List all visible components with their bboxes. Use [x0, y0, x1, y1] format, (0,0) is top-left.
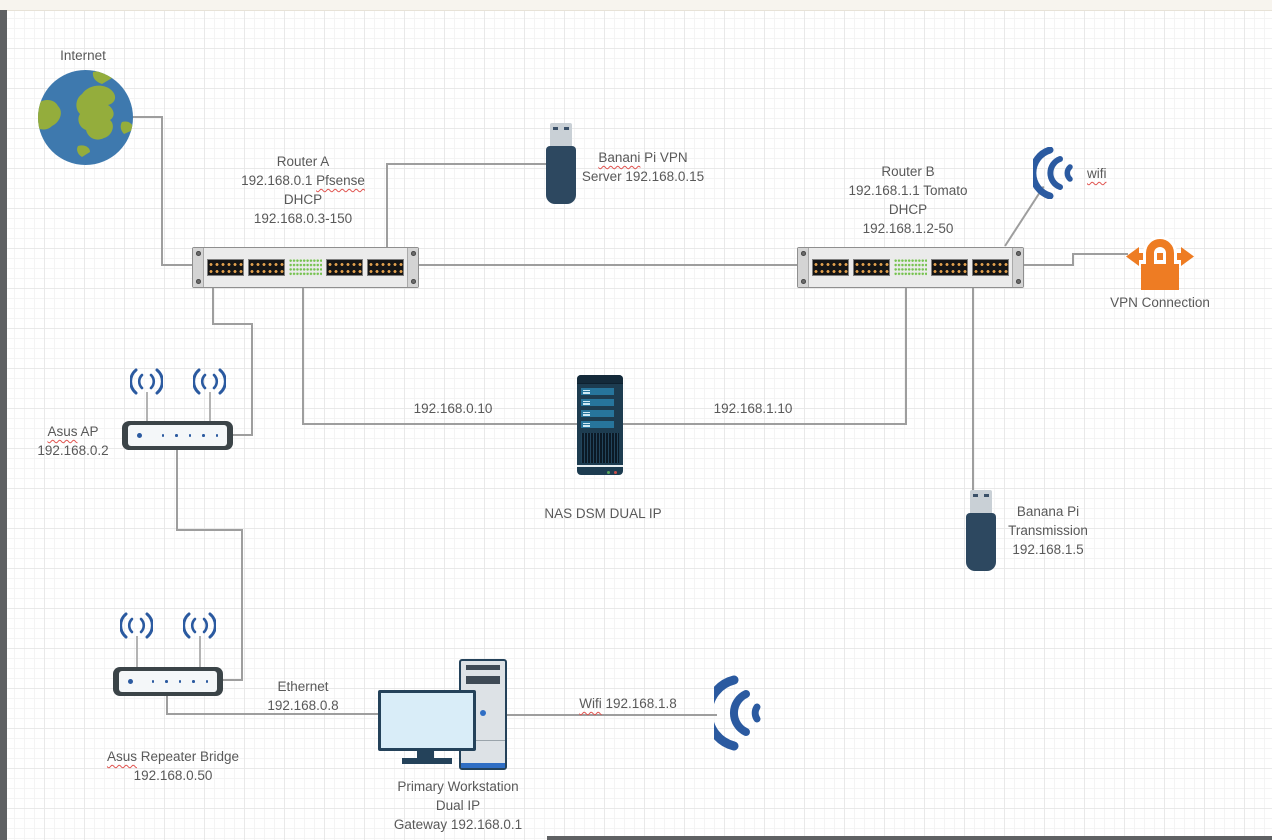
- label-line: NAS DSM DUAL IP: [513, 504, 693, 523]
- label-line: Transmission: [978, 521, 1118, 540]
- asus-repeater-bridge-label: Asus Repeater Bridge192.168.0.50: [73, 747, 273, 785]
- label-line: 192.168.1.10: [693, 399, 813, 418]
- label-line: VPN Connection: [1080, 293, 1240, 312]
- label-line: Ethernet: [233, 677, 373, 696]
- antenna-wifi-icon: [183, 612, 216, 639]
- port-group: [207, 259, 244, 276]
- router-a-switch[interactable]: [192, 247, 419, 288]
- antenna: [209, 392, 211, 422]
- connector-routerb-vpn[interactable]: [1072, 253, 1128, 255]
- led-grid: [894, 259, 927, 277]
- label-line: 192.168.0.1 Pfsense: [193, 171, 413, 190]
- connector-routera-asusap[interactable]: [251, 323, 253, 436]
- label-line: 192.168.1.5: [978, 540, 1118, 559]
- router-a-label: Router A192.168.0.1 PfsenseDHCP192.168.0…: [193, 152, 413, 228]
- label-line: Asus AP: [0, 422, 148, 441]
- port-group: [853, 259, 890, 276]
- port-group: [931, 259, 968, 276]
- connector-routera-asusap[interactable]: [232, 434, 253, 436]
- connector-routera-nas[interactable]: [302, 423, 578, 425]
- ip-192-168-1-10-label: 192.168.1.10: [693, 399, 813, 418]
- label-line: 192.168.0.8: [233, 696, 373, 715]
- port-group: [326, 259, 363, 276]
- ip-192-168-0-10-label: 192.168.0.10: [393, 399, 513, 418]
- label-line: Gateway 192.168.0.1: [348, 815, 568, 834]
- rack-ear: [798, 248, 809, 287]
- rack-ear: [407, 248, 418, 287]
- monitor-stand: [417, 751, 434, 758]
- vpn-connection-label: VPN Connection: [1080, 293, 1240, 312]
- antenna: [146, 392, 148, 422]
- label-line: Router A: [193, 152, 413, 171]
- label-line: 192.168.0.2: [0, 441, 148, 460]
- monitor-stand: [402, 758, 452, 764]
- wifi-label: wifi: [1087, 164, 1147, 183]
- bottom-scrollbar[interactable]: [547, 836, 1272, 840]
- ethernet-label: Ethernet192.168.0.8: [233, 677, 373, 715]
- top-toolbar-edge: [0, 0, 1272, 11]
- globe-icon[interactable]: [38, 70, 133, 165]
- connector-routera-asusap[interactable]: [212, 286, 214, 325]
- label-line: Banani Pi VPN: [543, 148, 743, 167]
- label-line: Wifi 192.168.1.8: [548, 694, 708, 713]
- port-group: [248, 259, 285, 276]
- label-line: Dual IP: [348, 796, 568, 815]
- label-line: 192.168.1.1 Tomato: [798, 181, 1018, 200]
- antenna-wifi-icon: [193, 368, 226, 395]
- connector-workstation-wifi[interactable]: [505, 714, 717, 716]
- label-line: Primary Workstation: [348, 777, 568, 796]
- connector-internet-routera[interactable]: [161, 264, 193, 266]
- connector-asusap-bridge[interactable]: [241, 529, 243, 681]
- vpn-lock-arrows-icon[interactable]: [1126, 236, 1194, 292]
- connector-routera-asusap[interactable]: [212, 323, 253, 325]
- port-group: [972, 259, 1009, 276]
- nas-tower-icon[interactable]: [577, 375, 623, 475]
- internet-label: Internet: [23, 46, 143, 65]
- label-line: wifi: [1087, 164, 1147, 183]
- wifi-192-168-1-8-label: Wifi 192.168.1.8: [548, 694, 708, 713]
- antenna: [136, 636, 138, 668]
- rack-ear: [1012, 248, 1023, 287]
- nas-label: NAS DSM DUAL IP: [513, 504, 693, 523]
- monitor-icon[interactable]: [378, 690, 476, 751]
- connector-internet-routera[interactable]: [132, 116, 163, 118]
- connector-routerb-bananapi[interactable]: [972, 286, 974, 490]
- asus-ap-label: Asus AP192.168.0.2: [0, 422, 148, 460]
- label-line: 192.168.0.3-150: [193, 209, 413, 228]
- label-line: DHCP: [798, 200, 1018, 219]
- router-b-label: Router B192.168.1.1 TomatoDHCP192.168.1.…: [798, 162, 1018, 238]
- label-line: 192.168.0.10: [393, 399, 513, 418]
- antenna-wifi-icon: [120, 612, 153, 639]
- connector-bridge-workstation[interactable]: [166, 694, 168, 715]
- banana-pi-transmission-label: Banana PiTransmission192.168.1.5: [978, 502, 1118, 559]
- connector-asusap-bridge[interactable]: [176, 529, 243, 531]
- connector-routerb-vpn[interactable]: [1017, 264, 1074, 266]
- label-line: Internet: [23, 46, 143, 65]
- connector-nas-routerb[interactable]: [622, 423, 907, 425]
- label-line: Asus Repeater Bridge: [73, 747, 273, 766]
- port-group: [812, 259, 849, 276]
- label-line: 192.168.0.50: [73, 766, 273, 785]
- connector-routera-routerb[interactable]: [417, 264, 797, 266]
- label-line: 192.168.1.2-50: [798, 219, 1018, 238]
- connector-nas-routerb[interactable]: [905, 286, 907, 425]
- wifi-signal-icon[interactable]: [714, 675, 764, 751]
- wireless-router-icon-repeater-bridge[interactable]: [113, 667, 223, 696]
- connector-asusap-bridge[interactable]: [176, 450, 178, 531]
- rack-ear: [193, 248, 204, 287]
- antenna: [199, 636, 201, 668]
- network-diagram-page: Internet Router A192.168.0.1 PfsenseDHCP…: [0, 0, 1272, 840]
- led-grid: [289, 259, 322, 277]
- port-group: [367, 259, 404, 276]
- router-b-switch[interactable]: [797, 247, 1024, 288]
- connector-routera-nas[interactable]: [302, 286, 304, 425]
- connector-internet-routera[interactable]: [161, 116, 163, 266]
- label-line: DHCP: [193, 190, 413, 209]
- label-line: Server 192.168.0.15: [543, 167, 743, 186]
- banani-pi-vpn-label: Banani Pi VPNServer 192.168.0.15: [543, 148, 743, 186]
- label-line: Banana Pi: [978, 502, 1118, 521]
- label-line: Router B: [798, 162, 1018, 181]
- wifi-signal-icon[interactable]: [1033, 147, 1079, 199]
- antenna-wifi-icon: [130, 368, 163, 395]
- primary-workstation-label: Primary WorkstationDual IPGateway 192.16…: [348, 777, 568, 834]
